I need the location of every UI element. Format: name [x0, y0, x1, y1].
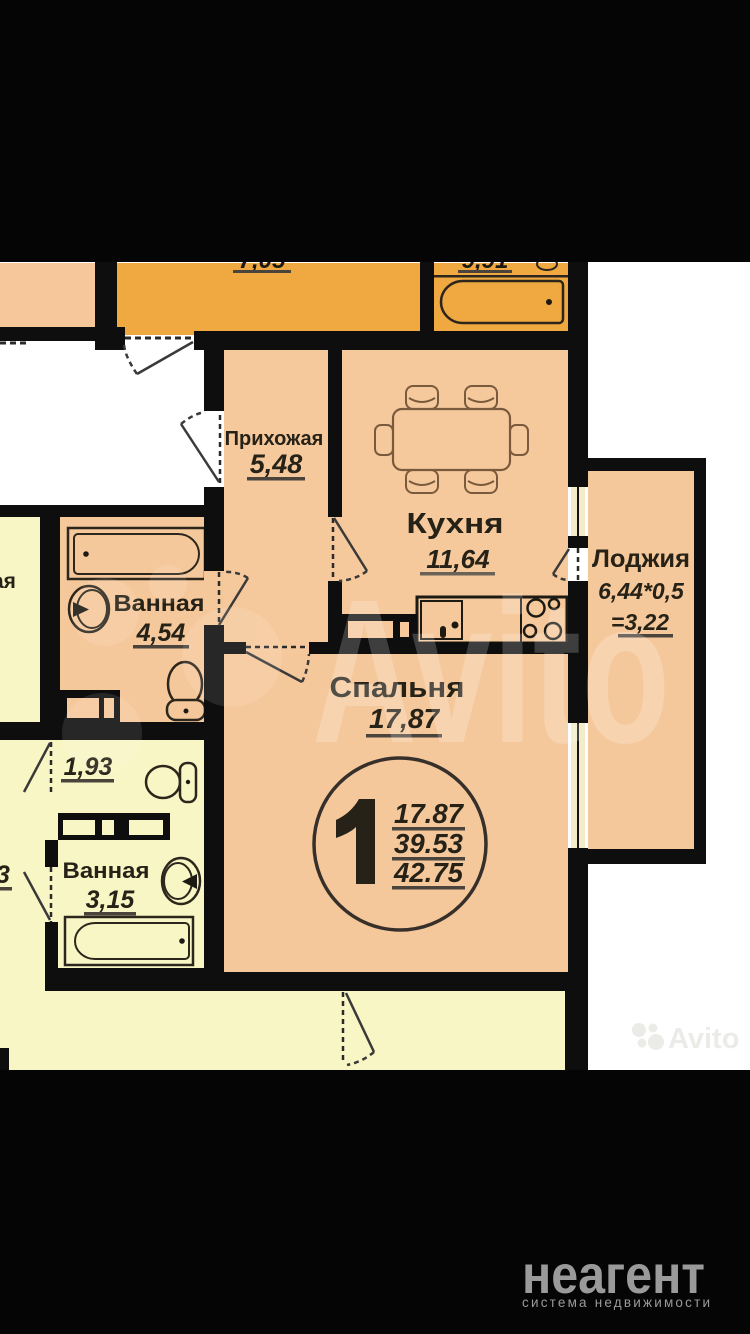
svg-text:ая: ая [0, 570, 16, 593]
svg-text:система недвижимости: система недвижимости [522, 1295, 712, 1310]
svg-text:4,54: 4,54 [136, 619, 186, 647]
svg-text:5,48: 5,48 [250, 449, 303, 479]
svg-text:39.53: 39.53 [394, 828, 463, 859]
svg-text:42.75: 42.75 [393, 857, 463, 888]
svg-text:Ванная: Ванная [63, 858, 150, 883]
svg-text:Avito: Avito [312, 557, 670, 786]
svg-text:Прихожая: Прихожая [225, 428, 324, 450]
svg-text:Avito: Avito [668, 1023, 739, 1055]
svg-text:3,15: 3,15 [86, 886, 136, 914]
svg-text:17.87: 17.87 [394, 798, 464, 829]
svg-text:3: 3 [0, 861, 10, 889]
svg-text:Кухня: Кухня [407, 508, 504, 540]
